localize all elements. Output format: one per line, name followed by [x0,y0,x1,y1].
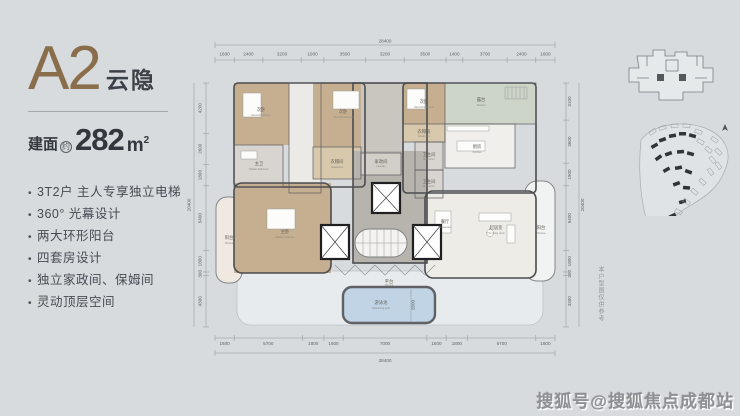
floor-area: 建面 约 282 m 2 [28,122,184,158]
swimming-pool [343,287,435,323]
svg-text:Cloakroom: Cloakroom [331,165,344,169]
svg-text:Laundry: Laundry [376,164,386,168]
site-plan [640,124,728,216]
svg-text:5700: 5700 [263,341,274,346]
svg-text:5400: 5400 [198,213,203,224]
svg-text:1600: 1600 [540,341,551,346]
svg-text:Swimming pool: Swimming pool [372,306,390,310]
room-label: 主卫 [255,160,264,166]
room-label: 次卧 [339,108,348,115]
feature-item: 独立家政间、保姆间 [28,270,184,292]
svg-text:300: 300 [567,270,572,278]
pool-dim-value: 2600 [411,299,416,310]
svg-text:2600: 2600 [198,143,203,154]
divider [28,111,168,112]
svg-text:2400: 2400 [243,52,254,57]
svg-text:28400: 28400 [379,39,392,44]
room-label: 餐厅 [441,218,450,225]
sofa-icon [479,213,511,221]
area-superscript: 2 [144,135,150,146]
svg-text:1800: 1800 [452,341,463,346]
bed-icon [267,209,295,229]
room-label: 卫生间 [423,151,436,158]
unit-title: A2 云隐 [28,40,184,99]
unit-subname: 云隐 [106,61,156,95]
svg-text:2400: 2400 [516,52,527,57]
svg-text:1800: 1800 [198,256,203,267]
svg-text:5700: 5700 [497,341,508,346]
area-value: 282 [75,122,124,158]
svg-text:Bathroom: Bathroom [423,184,434,188]
vanity-icon [241,151,257,159]
feature-item: 两大环形阳台 [28,226,184,248]
svg-text:Second bedroom: Second bedroom [251,113,271,117]
utility-floor [361,83,403,151]
svg-text:1800: 1800 [308,341,319,346]
svg-text:28400: 28400 [379,358,392,363]
room-label: 家政间 [375,158,388,165]
bed-icon [333,91,359,109]
sofa-icon [507,225,515,243]
svg-text:1800: 1800 [567,256,572,267]
feature-item: 360° 光幕设计 [28,204,184,226]
room-label: 衣帽间 [331,158,344,165]
svg-text:3500: 3500 [420,52,431,57]
key-plan [629,50,713,100]
feature-item: 3T2户 主人专享独立电梯 [28,182,184,204]
room-label: 游泳池 [375,299,389,306]
svg-text:Restaurant: Restaurant [439,225,452,229]
svg-text:1900: 1900 [307,52,318,57]
page: A2 云隐 建面 约 282 m 2 3T2户 主人专享独立电梯 360° 光幕… [0,0,740,416]
svg-text:1600: 1600 [540,52,551,57]
north-arrow-icon [722,124,728,131]
svg-text:4300: 4300 [567,296,572,307]
svg-text:The living room: The living room [487,231,505,235]
area-approx-mark: 约 [60,141,72,153]
svg-text:3600: 3600 [567,136,572,147]
svg-text:Terrace: Terrace [477,103,486,107]
central-stair-icon [355,229,407,257]
room-label: 次卧 [257,106,266,113]
svg-text:1900: 1900 [567,169,572,180]
svg-text:1400: 1400 [449,52,460,57]
room-label: 露台 [477,96,486,103]
svg-text:5400: 5400 [567,213,572,224]
room-label: 起居室 [490,224,504,231]
feature-item: 四套房设计 [28,248,184,270]
room-label: 次卧 [420,98,429,105]
svg-text:Kitchen: Kitchen [473,150,482,154]
area-prefix: 建面 [28,133,58,154]
svg-text:Terrace: Terrace [537,231,546,235]
svg-text:Second bedroom: Second bedroom [414,105,434,109]
unit-name: A2 [28,40,100,99]
svg-text:3500: 3500 [340,52,351,57]
svg-text:20400: 20400 [580,198,585,211]
svg-text:Cloakroom: Cloakroom [418,134,431,138]
svg-text:1600: 1600 [431,341,442,346]
svg-text:Bathroom: Bathroom [423,157,434,161]
svg-text:1600: 1600 [219,52,230,57]
room-label: 主卧 [281,228,290,235]
feature-list: 3T2户 主人专享独立电梯 360° 光幕设计 两大环形阳台 四套房设计 独立家… [28,182,184,314]
floor-plan: 2600 次卧 Second bedroom 次卧 Second bedroom… [185,33,605,373]
key-and-site-plan [615,36,735,216]
svg-text:Terrace: Terrace [225,241,234,245]
svg-text:7000: 7000 [380,341,391,346]
svg-text:Master bathroom: Master bathroom [249,167,269,171]
watermark: 搜狐号@搜狐焦点成都站 [536,387,734,412]
kitchen-counter-icon [447,126,489,131]
svg-text:4300: 4300 [198,296,203,307]
roof-terrace-floor [445,83,536,124]
svg-text:3700: 3700 [480,52,491,57]
room-label: 卫生间 [423,178,436,185]
room-label: 厨房 [473,143,482,150]
laundry-floor [361,153,401,175]
plan-disclaimer: 本户型图仅供参考 [596,266,605,322]
svg-text:4200: 4200 [198,103,203,114]
room-label: 衣帽间 [418,128,431,135]
svg-text:Terrace: Terrace [385,283,394,287]
area-unit: m [127,135,144,157]
room-label: 阳台 [225,234,234,241]
svg-text:3100: 3100 [567,96,572,107]
svg-text:Second bedroom: Second bedroom [333,115,353,119]
room-label: 阳台 [537,224,546,231]
svg-text:1600: 1600 [328,341,339,346]
floor-plan-drawing: 2600 次卧 Second bedroom 次卧 Second bedroom… [185,33,605,373]
svg-text:20400: 20400 [187,198,192,211]
unit-info-panel: A2 云隐 建面 约 282 m 2 3T2户 主人专享独立电梯 360° 光幕… [28,40,184,314]
svg-text:Master bedroom: Master bedroom [276,235,295,239]
svg-text:300: 300 [198,270,203,278]
feature-item: 灵动顶层空间 [28,292,184,314]
svg-text:1800: 1800 [198,170,203,181]
svg-text:3200: 3200 [277,52,288,57]
svg-text:3200: 3200 [380,52,391,57]
svg-text:1600: 1600 [219,341,230,346]
